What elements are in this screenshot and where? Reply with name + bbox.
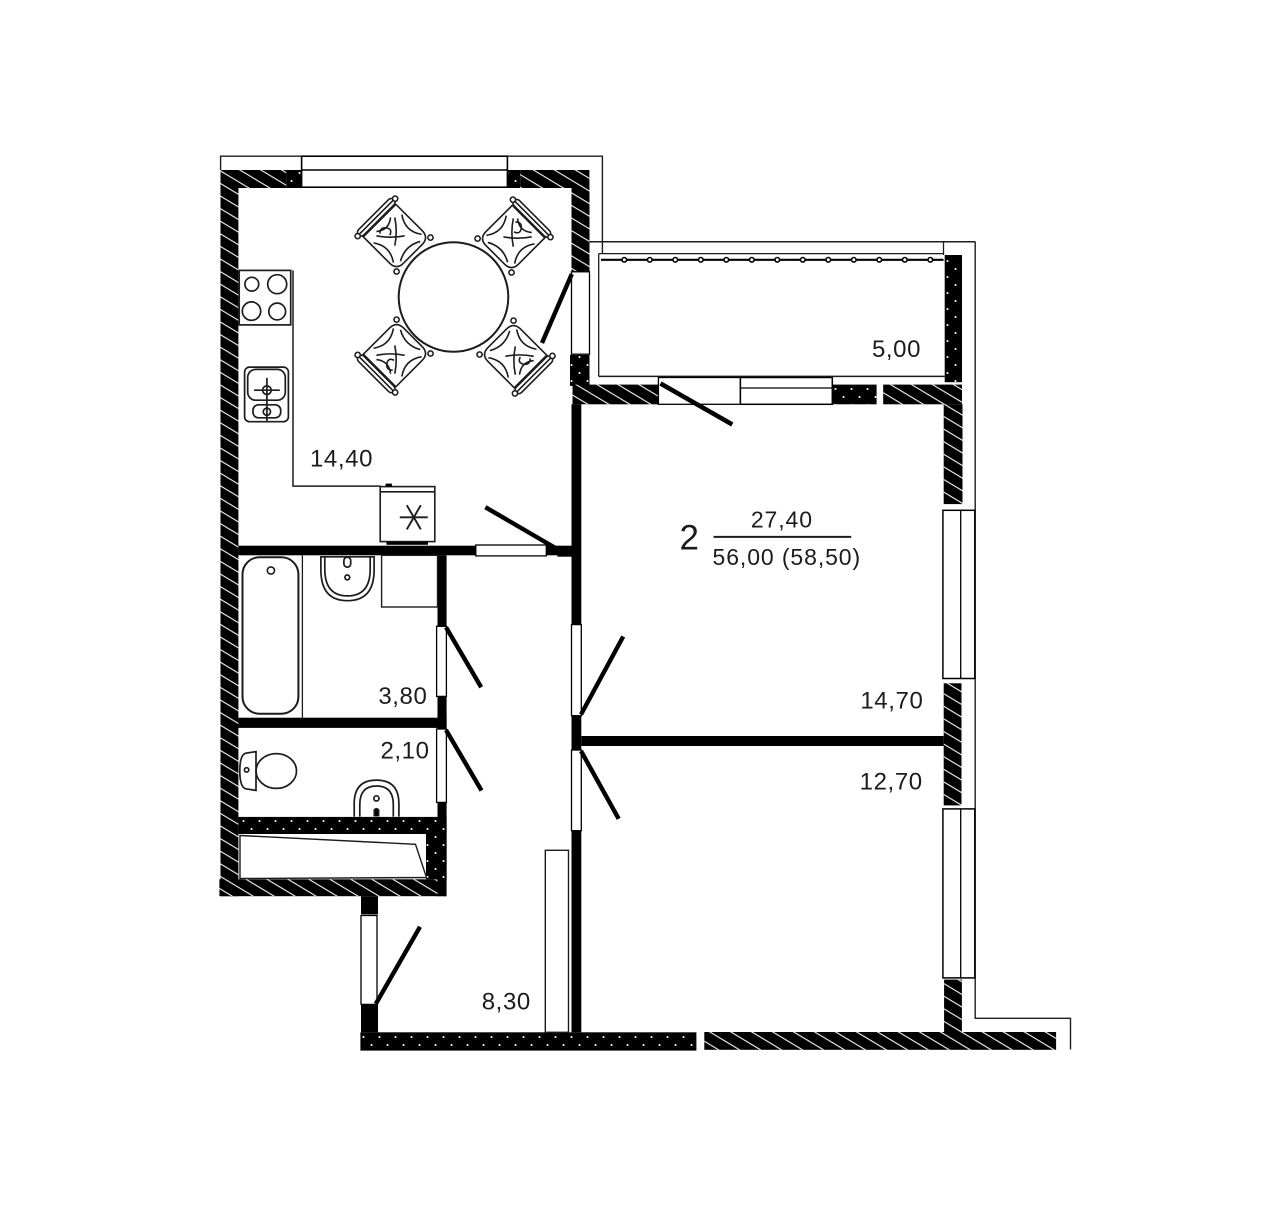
- svg-text:8,30: 8,30: [482, 989, 531, 1016]
- svg-text:14,70: 14,70: [860, 688, 923, 715]
- svg-text:3,80: 3,80: [378, 683, 427, 710]
- svg-text:27,40: 27,40: [751, 507, 813, 533]
- svg-text:2: 2: [680, 519, 699, 558]
- svg-text:2,10: 2,10: [380, 738, 429, 765]
- svg-text:5,00: 5,00: [872, 336, 921, 363]
- svg-text:56,00 (58,50): 56,00 (58,50): [713, 544, 862, 570]
- svg-text:12,70: 12,70: [860, 769, 923, 796]
- svg-text:14,40: 14,40: [310, 446, 373, 473]
